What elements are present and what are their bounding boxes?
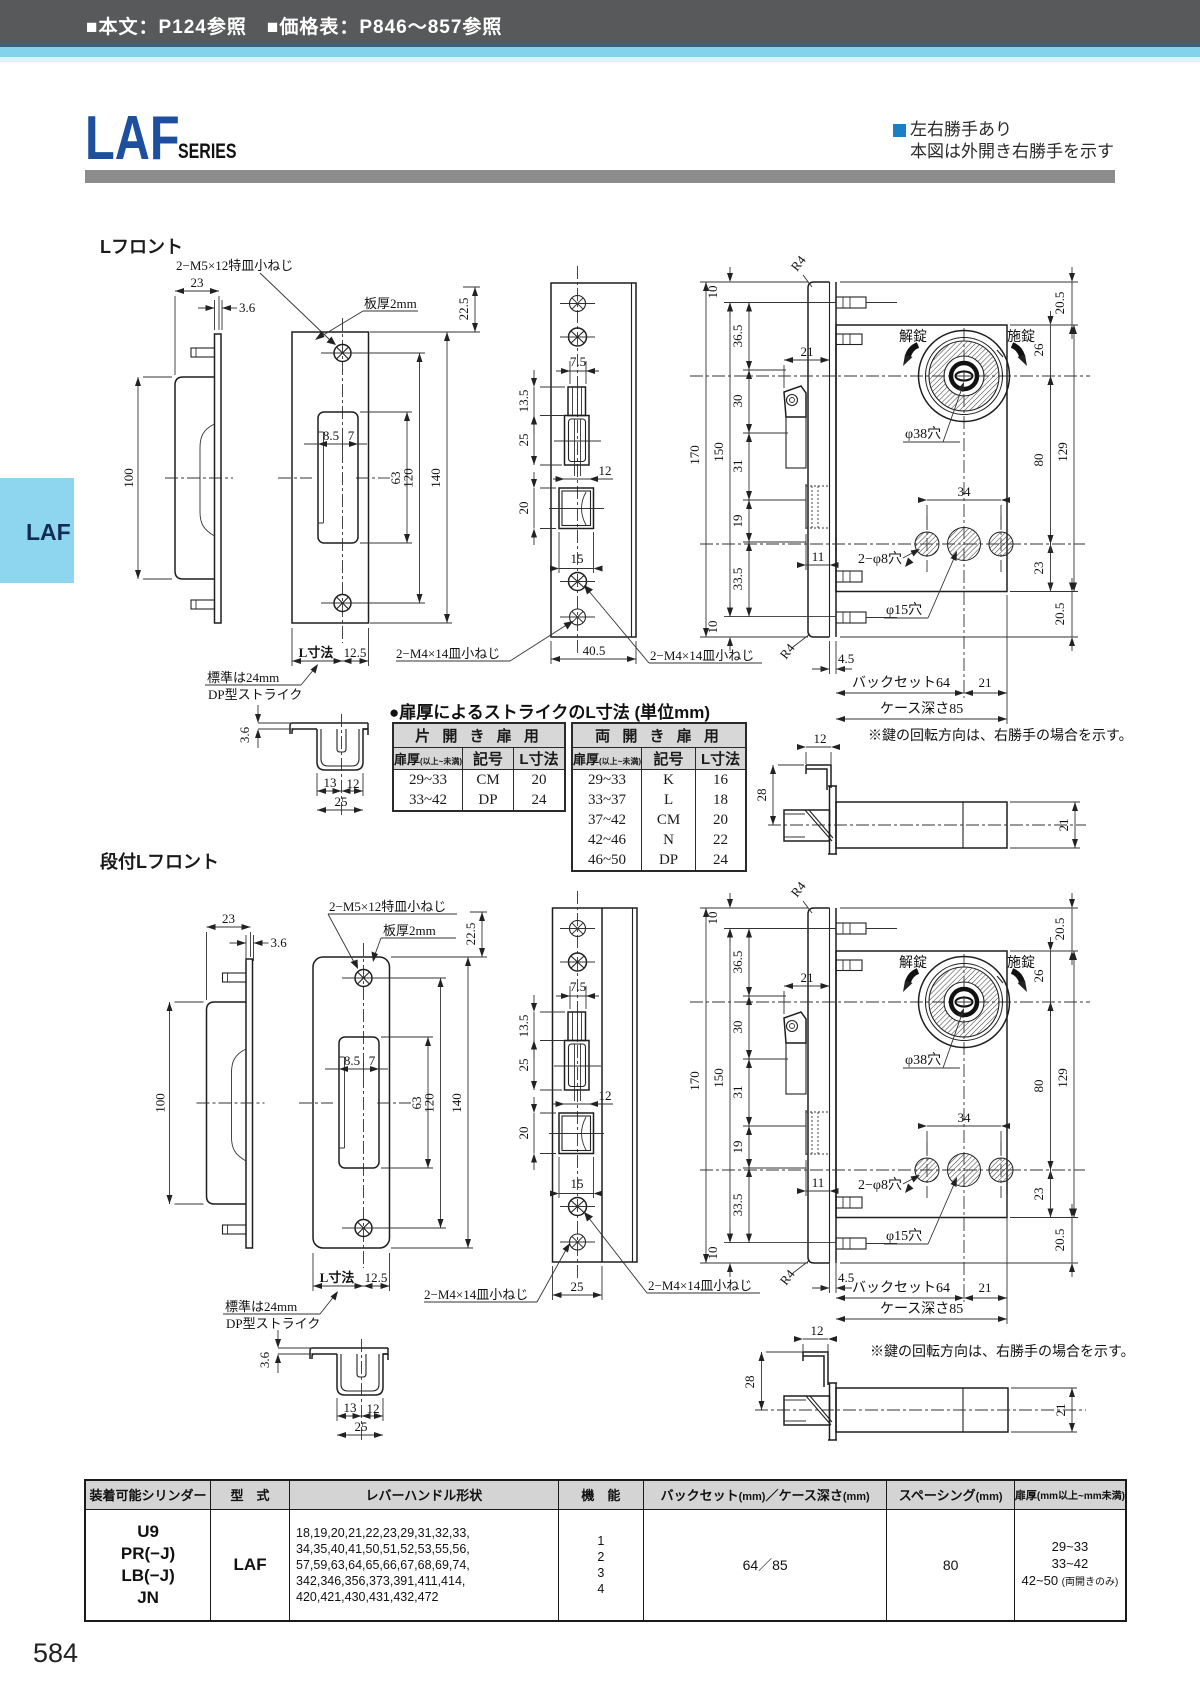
svg-text:36.5: 36.5 <box>730 325 745 348</box>
svg-text:L寸法: L寸法 <box>320 1270 355 1285</box>
svg-text:R4: R4 <box>788 878 809 900</box>
svg-text:8.5: 8.5 <box>323 428 339 443</box>
svg-text:2−M4×14皿小ねじ: 2−M4×14皿小ねじ <box>396 646 500 661</box>
svg-text:11: 11 <box>812 549 825 564</box>
svg-text:22.5: 22.5 <box>463 923 478 946</box>
svg-text:13: 13 <box>324 775 337 790</box>
svg-text:4.5: 4.5 <box>838 651 854 666</box>
svg-text:31: 31 <box>730 460 745 473</box>
svg-text:φ38穴: φ38穴 <box>905 426 941 442</box>
svg-text:19: 19 <box>730 515 745 528</box>
svg-text:15: 15 <box>571 551 584 566</box>
svg-text:23: 23 <box>191 275 204 290</box>
svg-text:ケース深さ85: ケース深さ85 <box>880 1301 963 1317</box>
svg-text:12: 12 <box>599 1088 612 1103</box>
svg-text:170: 170 <box>687 1071 702 1091</box>
svg-text:25: 25 <box>571 1279 584 1294</box>
svg-text:21: 21 <box>801 344 814 359</box>
svg-text:DP型ストライク: DP型ストライク <box>208 687 302 702</box>
svg-text:25: 25 <box>355 1419 368 1434</box>
svg-text:φ15穴: φ15穴 <box>886 1228 922 1244</box>
svg-text:2−M5×12特皿小ねじ: 2−M5×12特皿小ねじ <box>329 899 446 914</box>
svg-text:25: 25 <box>335 794 348 809</box>
svg-text:2−M4×14皿小ねじ: 2−M4×14皿小ねじ <box>650 648 754 663</box>
svg-text:26: 26 <box>1031 969 1046 983</box>
svg-text:12: 12 <box>347 776 360 791</box>
svg-text:2−M5×12特皿小ねじ: 2−M5×12特皿小ねじ <box>176 258 293 273</box>
svg-text:10: 10 <box>705 912 720 925</box>
svg-text:11: 11 <box>812 1175 825 1190</box>
svg-text:22.5: 22.5 <box>456 298 471 321</box>
svg-text:バックセット64: バックセット64 <box>852 1280 950 1296</box>
svg-text:120: 120 <box>422 1093 437 1113</box>
svg-text:12.5: 12.5 <box>365 1270 388 1285</box>
svg-text:12.5: 12.5 <box>344 645 367 660</box>
svg-text:20.5: 20.5 <box>1052 603 1067 626</box>
svg-text:R4: R4 <box>788 252 809 274</box>
svg-text:40.5: 40.5 <box>583 643 606 658</box>
svg-text:25: 25 <box>516 434 531 447</box>
svg-text:28: 28 <box>742 1376 757 1389</box>
svg-text:100: 100 <box>153 1093 168 1113</box>
svg-text:7.5: 7.5 <box>570 979 586 994</box>
svg-text:L寸法: L寸法 <box>299 645 334 660</box>
svg-text:20.5: 20.5 <box>1052 1229 1067 1252</box>
svg-text:21: 21 <box>979 1280 992 1295</box>
svg-text:20: 20 <box>516 1127 531 1140</box>
svg-text:※鍵の回転方向は、右勝手の場合を示す。: ※鍵の回転方向は、右勝手の場合を示す。 <box>870 1344 1135 1360</box>
svg-text:3.6: 3.6 <box>237 726 252 743</box>
svg-text:129: 129 <box>1055 1068 1070 1088</box>
svg-text:36.5: 36.5 <box>730 951 745 974</box>
svg-text:R4: R4 <box>777 640 798 662</box>
svg-text:8.5: 8.5 <box>344 1053 360 1068</box>
svg-text:20: 20 <box>516 502 531 515</box>
svg-text:12: 12 <box>599 463 612 478</box>
svg-text:バックセット64: バックセット64 <box>852 675 950 691</box>
svg-text:2−φ8穴: 2−φ8穴 <box>858 1177 902 1193</box>
svg-text:23: 23 <box>222 911 235 926</box>
svg-text:7: 7 <box>348 428 355 443</box>
svg-text:10: 10 <box>705 621 720 634</box>
svg-text:26: 26 <box>1031 343 1046 357</box>
svg-text:19: 19 <box>730 1141 745 1154</box>
svg-text:150: 150 <box>711 1068 726 1088</box>
svg-text:30: 30 <box>730 1021 745 1034</box>
svg-text:標準は24mm: 標準は24mm <box>207 670 279 685</box>
svg-text:7: 7 <box>369 1053 376 1068</box>
svg-text:2−M4×14皿小ねじ: 2−M4×14皿小ねじ <box>424 1287 528 1302</box>
svg-text:33.5: 33.5 <box>730 1194 745 1217</box>
svg-text:30: 30 <box>730 395 745 408</box>
svg-text:10: 10 <box>705 1247 720 1260</box>
svg-text:7.5: 7.5 <box>570 354 586 369</box>
svg-text:21: 21 <box>979 675 992 690</box>
svg-text:12: 12 <box>814 731 827 746</box>
svg-text:120: 120 <box>401 468 416 488</box>
svg-text:10: 10 <box>705 286 720 299</box>
svg-text:標準は24mm: 標準は24mm <box>225 1299 297 1314</box>
svg-text:15: 15 <box>571 1176 584 1191</box>
svg-text:3.6: 3.6 <box>271 935 288 950</box>
svg-text:12: 12 <box>811 1323 824 1338</box>
svg-text:21: 21 <box>1056 819 1071 832</box>
svg-text:2−M4×14皿小ねじ: 2−M4×14皿小ねじ <box>648 1278 752 1293</box>
svg-text:21: 21 <box>801 970 814 985</box>
svg-text:板厚2mm: 板厚2mm <box>383 923 436 938</box>
svg-text:28: 28 <box>754 789 769 802</box>
svg-text:31: 31 <box>730 1086 745 1099</box>
svg-text:3.6: 3.6 <box>239 300 256 315</box>
svg-text:解錠: 解錠 <box>899 329 927 345</box>
svg-text:140: 140 <box>449 1093 464 1113</box>
svg-text:3.6: 3.6 <box>257 1351 272 1368</box>
svg-text:20.5: 20.5 <box>1052 292 1067 315</box>
svg-text:ケース深さ85: ケース深さ85 <box>880 701 963 717</box>
svg-text:板厚2mm: 板厚2mm <box>364 296 417 311</box>
svg-text:12: 12 <box>367 1401 380 1416</box>
svg-text:解錠: 解錠 <box>899 955 927 971</box>
svg-text:20.5: 20.5 <box>1052 918 1067 941</box>
svg-text:34: 34 <box>958 1110 972 1125</box>
svg-text:23: 23 <box>1031 1188 1046 1201</box>
svg-text:φ15穴: φ15穴 <box>886 602 922 618</box>
svg-text:23: 23 <box>1031 562 1046 575</box>
svg-text:100: 100 <box>121 468 136 488</box>
svg-text:施錠: 施錠 <box>1007 329 1035 345</box>
svg-text:※鍵の回転方向は、右勝手の場合を示す。: ※鍵の回転方向は、右勝手の場合を示す。 <box>868 728 1133 744</box>
svg-text:80: 80 <box>1031 1080 1046 1093</box>
svg-text:φ38穴: φ38穴 <box>905 1052 941 1068</box>
svg-text:33.5: 33.5 <box>730 568 745 591</box>
svg-text:170: 170 <box>687 445 702 465</box>
svg-text:34: 34 <box>958 484 972 499</box>
svg-text:13.5: 13.5 <box>516 390 531 413</box>
svg-text:140: 140 <box>428 468 443 488</box>
svg-text:25: 25 <box>516 1059 531 1072</box>
svg-text:21: 21 <box>1053 1404 1068 1417</box>
svg-text:R4: R4 <box>777 1266 798 1288</box>
svg-text:13.5: 13.5 <box>516 1015 531 1038</box>
svg-text:DP型ストライク: DP型ストライク <box>226 1316 320 1331</box>
svg-text:施錠: 施錠 <box>1007 955 1035 971</box>
svg-text:13: 13 <box>344 1400 357 1415</box>
svg-text:2−φ8穴: 2−φ8穴 <box>858 551 902 567</box>
svg-text:129: 129 <box>1055 442 1070 462</box>
svg-text:150: 150 <box>711 442 726 462</box>
svg-text:80: 80 <box>1031 454 1046 467</box>
